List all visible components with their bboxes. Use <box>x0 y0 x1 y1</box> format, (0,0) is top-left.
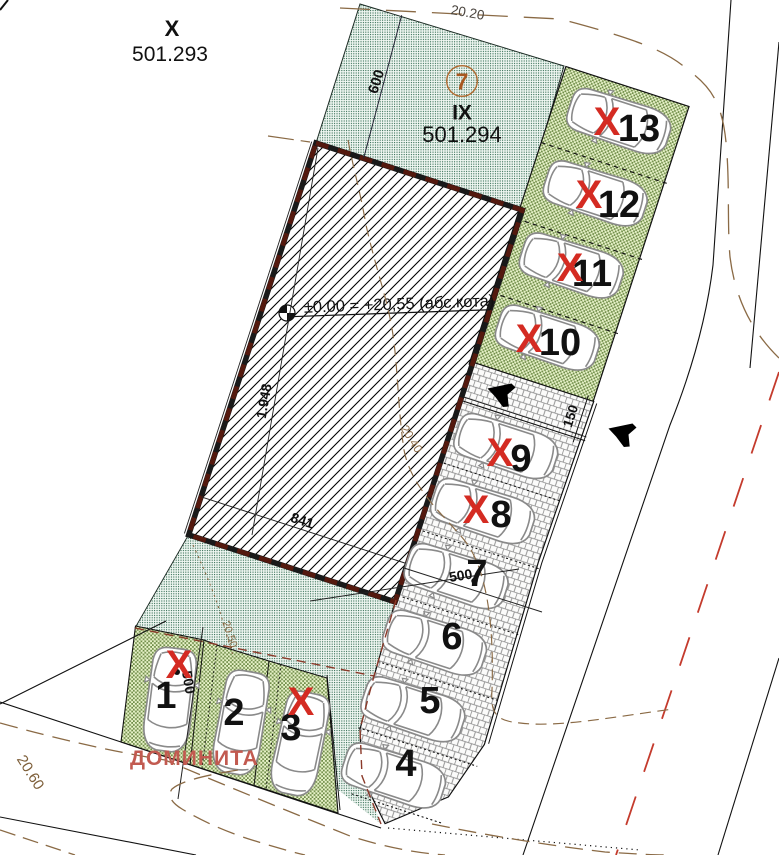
svg-text:12: 12 <box>598 184 640 226</box>
svg-text:7: 7 <box>456 69 469 95</box>
svg-text:7: 7 <box>466 553 487 595</box>
svg-text:13: 13 <box>618 108 660 150</box>
svg-text:X: X <box>487 431 514 475</box>
svg-text:X: X <box>516 317 543 361</box>
svg-text:6: 6 <box>441 616 462 658</box>
svg-text:2: 2 <box>223 692 244 734</box>
svg-text:X: X <box>288 680 315 724</box>
svg-text:501.294: 501.294 <box>422 122 502 147</box>
svg-text:X: X <box>576 173 603 217</box>
svg-text:8: 8 <box>490 494 511 536</box>
svg-text:ДОМИНИТА: ДОМИНИТА <box>130 747 259 770</box>
svg-text:9: 9 <box>510 438 531 480</box>
svg-text:4: 4 <box>395 743 416 785</box>
svg-text:X: X <box>463 488 490 532</box>
svg-text:X: X <box>166 643 193 687</box>
svg-text:X: X <box>594 100 621 144</box>
svg-text:5: 5 <box>419 680 440 722</box>
svg-text:501.293: 501.293 <box>132 43 208 66</box>
svg-text:10: 10 <box>539 322 581 364</box>
svg-text:X: X <box>557 246 584 290</box>
svg-text:X: X <box>165 16 180 41</box>
